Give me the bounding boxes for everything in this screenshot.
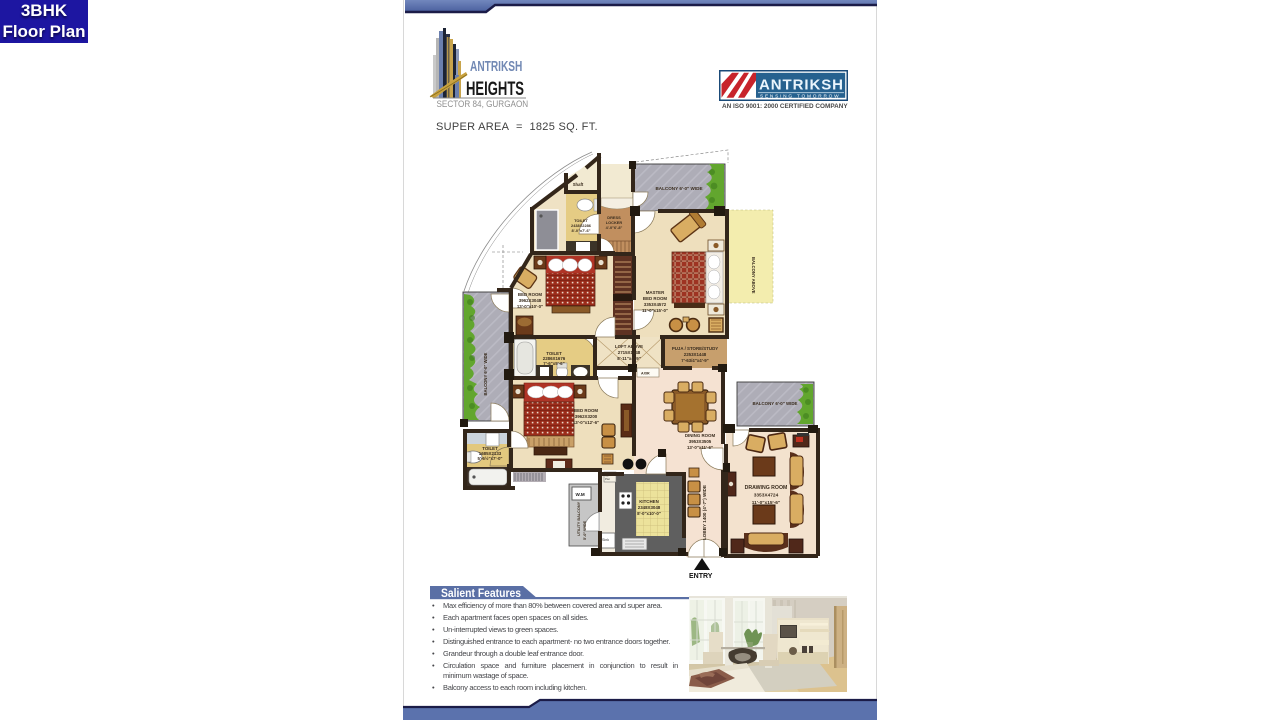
svg-text:3953X3505: 3953X3505 <box>689 439 712 444</box>
svg-text:ANTRIKSH: ANTRIKSH <box>759 77 843 94</box>
svg-text:MASTER: MASTER <box>646 290 665 295</box>
svg-text:3353X4572: 3353X4572 <box>644 302 667 307</box>
svg-text:Plat: Plat <box>605 477 610 481</box>
svg-text:UTILITY BALCONY: UTILITY BALCONY <box>577 501 581 536</box>
svg-text:SENSING TOMORROW: SENSING TOMORROW <box>760 94 840 100</box>
svg-text:13'-0"x12'-6": 13'-0"x12'-6" <box>573 420 599 425</box>
svg-text:8'-0"x10'-0": 8'-0"x10'-0" <box>637 511 661 516</box>
svg-text:PUJA / STORE/STUDY: PUJA / STORE/STUDY <box>672 346 718 351</box>
svg-text:Salient Features: Salient Features <box>441 586 521 600</box>
svg-text:2253X1448: 2253X1448 <box>684 352 707 357</box>
svg-text:SECTOR 84, GURGAON: SECTOR 84, GURGAON <box>436 98 528 109</box>
svg-text:4'-0"6'-8": 4'-0"6'-8" <box>606 225 623 230</box>
svg-text:5'-6½"x7'-0": 5'-6½"x7'-0" <box>477 456 502 461</box>
svg-text:BED ROOM: BED ROOM <box>518 292 542 297</box>
svg-text:BALCONY 6'-0" WIDE: BALCONY 6'-0" WIDE <box>752 401 797 406</box>
svg-text:BALCONY ABOVE: BALCONY ABOVE <box>751 257 756 294</box>
svg-text:BED ROOM: BED ROOM <box>574 408 598 413</box>
svg-text:Shaft: Shaft <box>573 182 584 187</box>
svg-text:LOFT ABOVE: LOFT ABOVE <box>615 344 643 349</box>
svg-text:W.M: W.M <box>576 492 585 497</box>
svg-text:5'-0" WIDE: 5'-0" WIDE <box>583 520 587 540</box>
svg-text:BALCONY 6'-0" WIDE: BALCONY 6'-0" WIDE <box>483 352 488 395</box>
svg-text:KITCHEN: KITCHEN <box>639 499 659 504</box>
svg-text:13'-0"x11'-6": 13'-0"x11'-6" <box>687 445 713 450</box>
svg-text:7'-6"x5'-6": 7'-6"x5'-6" <box>543 361 564 366</box>
svg-text:BED ROOM: BED ROOM <box>643 296 667 301</box>
svg-text:HEIGHTS: HEIGHTS <box>466 77 524 99</box>
svg-text:LOBBY 1400 (4'-7") WIDE: LOBBY 1400 (4'-7") WIDE <box>702 485 707 540</box>
svg-text:DRAWING ROOM: DRAWING ROOM <box>745 485 788 491</box>
svg-text:Sink: Sink <box>602 538 609 542</box>
svg-text:8'-11"x4'-9": 8'-11"x4'-9" <box>617 356 641 361</box>
svg-text:3962X3200: 3962X3200 <box>575 414 598 419</box>
svg-text:AN ISO 9001: 2000 CERTIFIED CO: AN ISO 9001: 2000 CERTIFIED COMPANY <box>722 103 848 110</box>
svg-text:AXIR: AXIR <box>641 372 650 376</box>
svg-text:11'-0"x15'-0": 11'-0"x15'-0" <box>642 308 668 313</box>
svg-text:2348X3048: 2348X3048 <box>638 505 661 510</box>
svg-text:3962X3048: 3962X3048 <box>519 298 542 303</box>
svg-text:11'-0"x15'-6": 11'-0"x15'-6" <box>752 500 780 506</box>
svg-text:DINING ROOM: DINING ROOM <box>685 433 716 438</box>
svg-text:ANTRIKSH: ANTRIKSH <box>470 58 522 74</box>
svg-text:BALCONY 6'-0" WIDE: BALCONY 6'-0" WIDE <box>655 186 702 191</box>
svg-text:7'-63/4"x4'-9": 7'-63/4"x4'-9" <box>681 358 709 363</box>
svg-text:8'-0"x7'-6": 8'-0"x7'-6" <box>572 228 591 233</box>
svg-text:ENTRY: ENTRY <box>689 573 713 580</box>
svg-text:3353X4724: 3353X4724 <box>754 493 779 499</box>
svg-text:13'-0"x10'-0": 13'-0"x10'-0" <box>517 304 543 309</box>
svg-text:2715X1448: 2715X1448 <box>618 350 641 355</box>
